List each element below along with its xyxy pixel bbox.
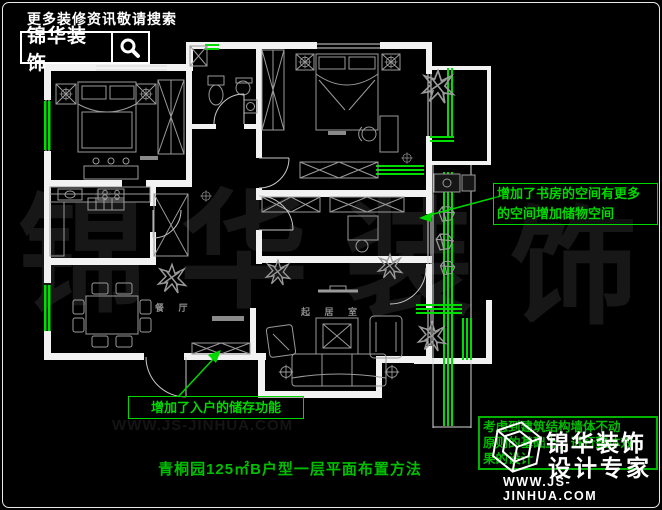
screenshot-root: 锦 华 装 饰 WWW.JS-JINHUA.COM	[0, 0, 662, 510]
cube-logo-icon	[488, 419, 548, 482]
dining-label: 餐 厅	[154, 302, 194, 313]
washing-machine	[244, 100, 257, 113]
bath-sink	[236, 78, 252, 95]
wardrobe	[158, 80, 184, 154]
entry-storage	[192, 343, 250, 354]
living-label: 起 居 室	[300, 306, 363, 317]
furniture-layer	[50, 46, 475, 397]
sofa	[292, 354, 386, 386]
annotation-arrows	[178, 197, 497, 397]
footer-url[interactable]: WWW.JS-JINHUA.COM	[503, 475, 662, 503]
desk-study	[348, 216, 378, 252]
study-annotation: 增加了书房的空间有更多 的空间增加储物空间	[493, 183, 658, 225]
cabinet-master	[300, 162, 378, 178]
dining-set	[73, 283, 151, 347]
toilet	[208, 76, 224, 105]
room-labels: 餐 厅 起 居 室	[154, 302, 363, 317]
plant-icon	[266, 260, 289, 285]
sideboard	[212, 316, 244, 321]
dresser	[84, 156, 158, 179]
armchair-right	[370, 316, 402, 358]
brand-label: 锦华装饰	[22, 33, 111, 62]
compass-mark-icon	[385, 365, 399, 379]
armchair-left	[266, 324, 296, 357]
kitchen-counter	[50, 187, 150, 256]
tv-unit	[318, 286, 358, 291]
search-icon[interactable]	[113, 33, 148, 62]
compass-mark-icon	[200, 190, 211, 201]
bed-small	[56, 82, 156, 152]
plant-icon	[159, 265, 186, 294]
study-annotation-line1: 增加了书房的空间有更多	[497, 184, 654, 204]
entry-annotation: 增加了入户的储存功能	[128, 396, 304, 419]
garden-fixtures	[434, 174, 475, 192]
tall-cabinet	[154, 194, 188, 256]
bed-master	[296, 54, 400, 130]
coffee-table	[316, 318, 358, 354]
study-cabinets	[262, 197, 404, 212]
compass-mark-icon	[279, 365, 293, 379]
wardrobe-master	[262, 50, 284, 130]
page-title: 青桐园125㎡B户型一层平面布置方法	[120, 458, 460, 479]
search-box[interactable]: 锦华装饰	[20, 31, 150, 64]
study-annotation-line2: 的空间增加储物空间	[497, 204, 654, 224]
compass-mark-icon	[401, 152, 412, 163]
